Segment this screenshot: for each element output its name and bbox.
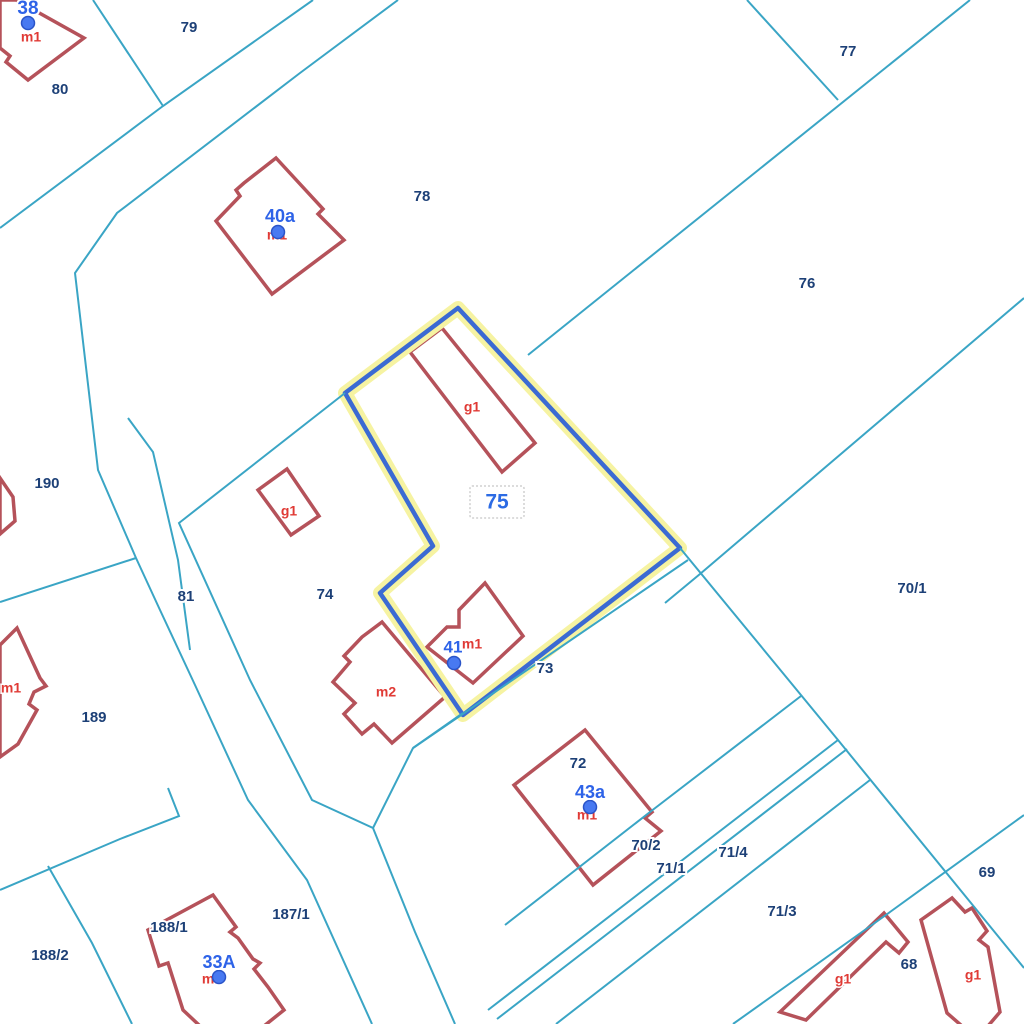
parcel-boundary-line xyxy=(680,548,1024,968)
address-point-dot[interactable] xyxy=(448,657,461,670)
parcel-label: 78 xyxy=(414,188,431,205)
address-number-label: 38 xyxy=(17,0,38,19)
parcel-label: 71/3 xyxy=(767,903,796,920)
address-number-label: 41 xyxy=(444,637,463,656)
building-type-label: g1 xyxy=(835,971,852,987)
address-number-label: 40a xyxy=(265,206,296,226)
parcel-label: 187/1 xyxy=(272,906,310,923)
parcel-label: 71/1 xyxy=(656,860,685,877)
building-type-label: g1 xyxy=(464,399,481,415)
parcel-label: 70/1 xyxy=(897,580,926,597)
map-svg: 797780787619070/18174189737270/271/471/1… xyxy=(0,0,1024,1024)
parcel-label: 188/2 xyxy=(31,947,69,964)
parcel-boundary-line xyxy=(75,0,398,1024)
address-point-dot[interactable] xyxy=(584,801,597,814)
address-number-label: 43a xyxy=(575,782,606,802)
parcel-label: 77 xyxy=(840,43,857,60)
building-outline xyxy=(921,898,1000,1024)
parcel-label: 188/1 xyxy=(150,919,188,936)
parcel-label: 72 xyxy=(570,755,587,772)
building-type-label: m1 xyxy=(1,680,21,696)
parcel-label: 189 xyxy=(81,709,106,726)
parcel-boundary-line xyxy=(128,418,190,650)
parcel-label: 69 xyxy=(979,864,996,881)
parcel-boundary-line xyxy=(93,0,163,106)
parcel-label: 68 xyxy=(901,956,918,973)
building-type-label: g1 xyxy=(281,503,298,519)
building-outline xyxy=(0,478,15,534)
parcel-label: 76 xyxy=(799,275,816,292)
building-type-label: m1 xyxy=(462,636,482,652)
parcel-boundary-line xyxy=(48,866,132,1024)
parcel-label: 71/4 xyxy=(718,844,748,861)
address-point-dot[interactable] xyxy=(272,226,285,239)
address-number-label: 33A xyxy=(202,952,235,972)
parcel-boundary-line xyxy=(528,0,970,355)
building-outline xyxy=(427,583,523,683)
parcel-boundary-line xyxy=(0,788,179,890)
parcel-label: 73 xyxy=(537,660,554,677)
selected-parcel-label: 75 xyxy=(485,491,509,514)
parcel-label: 79 xyxy=(181,19,198,36)
parcel-boundary-line xyxy=(665,298,1024,603)
building-outline xyxy=(333,622,445,743)
building-type-label: g1 xyxy=(965,967,982,983)
building-outline xyxy=(0,0,84,80)
parcel-label: 70/2 xyxy=(631,837,660,854)
parcel-label: 190 xyxy=(34,475,59,492)
parcel-boundary-line xyxy=(0,558,136,602)
address-point-dot[interactable] xyxy=(213,971,226,984)
parcel-labels-layer: 797780787619070/18174189737270/271/471/1… xyxy=(31,19,995,973)
building-type-label: m2 xyxy=(376,684,396,700)
building-type-label: m1 xyxy=(21,29,41,45)
parcel-boundary-line xyxy=(747,0,838,100)
parcel-label: 74 xyxy=(317,586,334,603)
parcel-label: 81 xyxy=(178,588,195,605)
cadastral-map-canvas[interactable]: 797780787619070/18174189737270/271/471/1… xyxy=(0,0,1024,1024)
parcel-label: 80 xyxy=(52,81,69,98)
building-outline xyxy=(780,913,908,1020)
